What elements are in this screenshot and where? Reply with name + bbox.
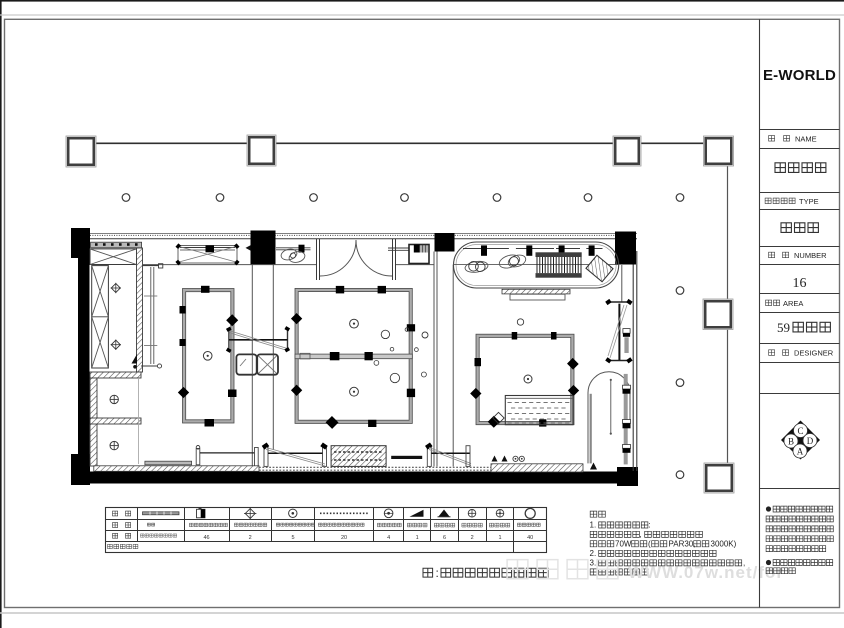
svg-text:2: 2 [471,535,474,541]
svg-text:D: D [807,436,814,446]
svg-text:70W: 70W [615,539,632,548]
svg-text:B: B [788,437,794,447]
svg-text:A: A [797,447,804,457]
svg-text:2.: 2. [590,549,597,558]
svg-text:1: 1 [498,535,501,541]
svg-text:,: , [640,530,642,539]
svg-text:59: 59 [777,320,790,335]
svg-text::: : [649,521,651,530]
svg-text:5: 5 [291,535,294,541]
svg-text:20: 20 [341,535,347,541]
svg-text:4: 4 [387,535,390,541]
svg-text:2: 2 [249,535,252,541]
svg-text:3000K): 3000K) [711,539,737,548]
svg-text:PAR30,: PAR30, [669,539,696,548]
svg-text:WWW.07w.net/for: WWW.07w.net/for [628,563,784,582]
svg-text:16: 16 [793,276,807,291]
svg-text:DESIGNER: DESIGNER [794,349,834,358]
svg-text:NUMBER: NUMBER [794,251,827,260]
svg-text:3.: 3. [590,558,597,567]
svg-text:(: ( [648,539,651,548]
svg-text:46: 46 [203,535,209,541]
svg-text:TYPE: TYPE [799,197,819,206]
svg-text:C: C [797,426,803,436]
svg-text:1: 1 [416,535,419,541]
svg-text:6: 6 [443,535,446,541]
svg-text:AREA: AREA [783,299,803,308]
svg-text:E-WORLD: E-WORLD [763,67,836,84]
svg-text:NAME: NAME [795,135,817,144]
svg-text:40: 40 [527,535,533,541]
svg-text:1.: 1. [590,521,597,530]
svg-text::: : [436,566,439,580]
